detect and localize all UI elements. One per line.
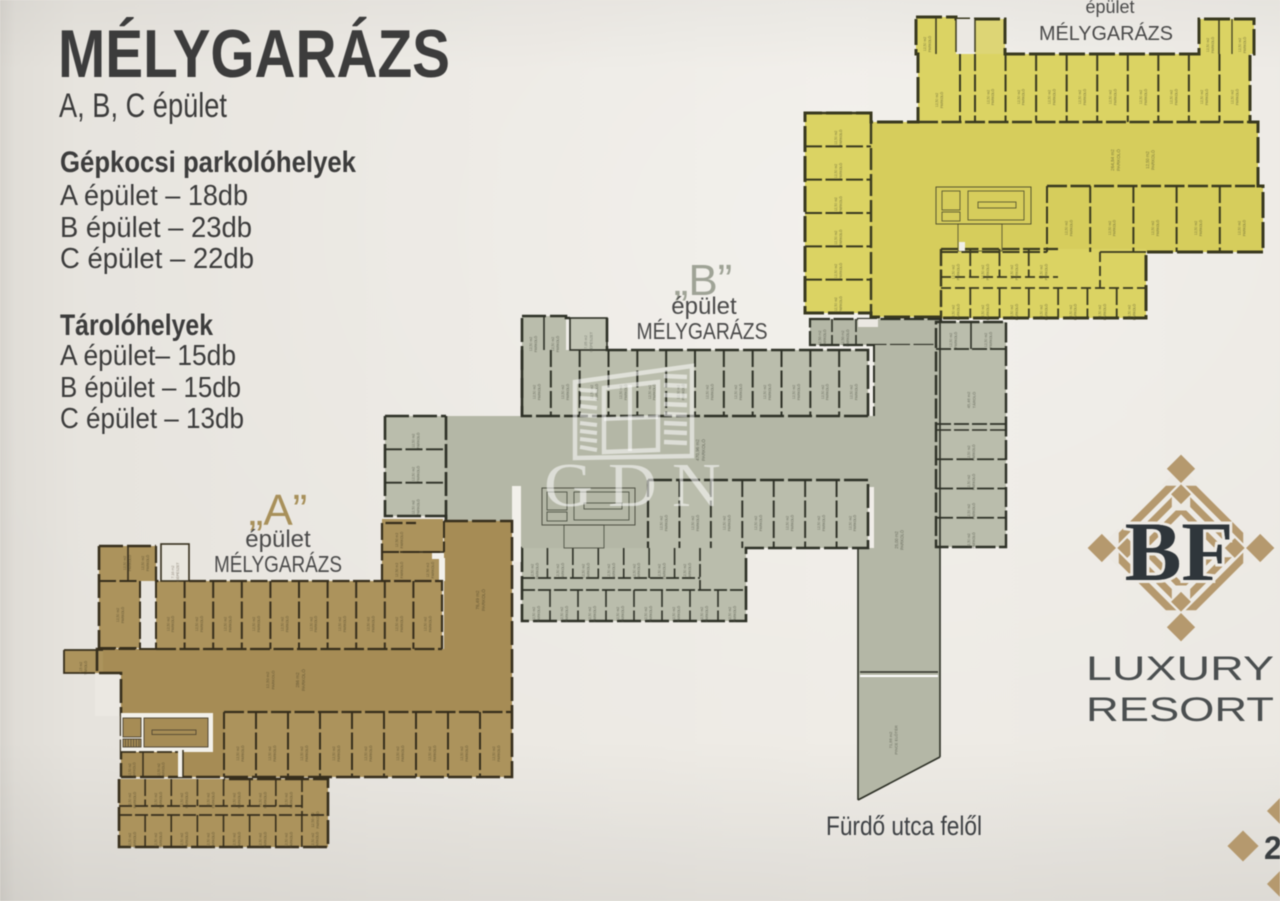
svg-text:12,50 m2: 12,50 m2 xyxy=(1039,265,1043,279)
svg-text:12,50 m2: 12,50 m2 xyxy=(700,607,704,621)
svg-text:PARKOLÓ: PARKOLÓ xyxy=(648,606,653,623)
svg-text:PARKOLÓ: PARKOLÓ xyxy=(1112,89,1117,106)
svg-text:12,50 m2: 12,50 m2 xyxy=(818,331,822,346)
svg-text:12,50 m2: 12,50 m2 xyxy=(658,564,662,578)
svg-text:RESORT: RESORT xyxy=(1086,691,1274,729)
svg-text:PARKOLÓ: PARKOLÓ xyxy=(210,832,215,849)
svg-text:PARKOLÓ: PARKOLÓ xyxy=(415,432,420,449)
svg-text:PARKOLÓ: PARKOLÓ xyxy=(313,616,318,633)
svg-text:PARKOLÓ: PARKOLÓ xyxy=(956,264,961,281)
svg-text:12,50 m2: 12,50 m2 xyxy=(632,564,636,578)
svg-text:12,50 m2: 12,50 m2 xyxy=(531,564,535,578)
svg-text:PARKOLÓ: PARKOLÓ xyxy=(971,503,976,520)
svg-text:PARKOLÓ: PARKOLÓ xyxy=(838,263,843,280)
svg-text:PARKOLÓ: PARKOLÓ xyxy=(985,264,990,281)
svg-text:12,50 m2: 12,50 m2 xyxy=(1010,305,1014,319)
svg-text:12,50 m2: 12,50 m2 xyxy=(785,516,789,530)
svg-text:2: 2 xyxy=(1264,830,1280,866)
svg-text:PARKOLÓ: PARKOLÓ xyxy=(956,304,961,321)
svg-text:PARKOLÓ: PARKOLÓ xyxy=(399,531,404,548)
svg-text:12,50 m2: 12,50 m2 xyxy=(128,793,132,807)
svg-text:286 m2: 286 m2 xyxy=(295,672,300,688)
svg-text:12,50 m2: 12,50 m2 xyxy=(1237,221,1241,235)
svg-text:12,50 m2: 12,50 m2 xyxy=(834,231,838,245)
svg-text:PARKOLÓ: PARKOLÓ xyxy=(620,606,625,623)
svg-text:PARKOLÓ: PARKOLÓ xyxy=(132,832,137,849)
svg-text:PARKOLÓ: PARKOLÓ xyxy=(240,745,245,762)
svg-text:PARKOLÓ: PARKOLÓ xyxy=(1204,89,1209,106)
svg-text:Fürdő utca felől: Fürdő utca felől xyxy=(826,811,982,841)
svg-text:12,50 m2: 12,50 m2 xyxy=(232,793,236,807)
svg-text:PARKOLÓ: PARKOLÓ xyxy=(1082,89,1087,106)
svg-text:12,50 m2: 12,50 m2 xyxy=(195,617,199,631)
svg-text:12,50 m2: 12,50 m2 xyxy=(754,516,758,530)
svg-text:12,50 m2: 12,50 m2 xyxy=(967,504,971,518)
svg-text:12,50 m2: 12,50 m2 xyxy=(367,617,371,631)
svg-text:PARKOLÓ: PARKOLÓ xyxy=(1043,264,1048,281)
svg-text:PARKOLÓ: PARKOLÓ xyxy=(480,589,486,611)
svg-text:PARKOLÓ: PARKOLÓ xyxy=(199,616,204,633)
svg-text:PARKOLÓ: PARKOLÓ xyxy=(825,384,830,401)
svg-text:12,50 m2: 12,50 m2 xyxy=(616,607,620,621)
svg-text:12,50 m2: 12,50 m2 xyxy=(1010,265,1014,279)
svg-text:PARKOLÓ: PARKOLÓ xyxy=(1069,220,1074,237)
svg-text:PARKOLÓ: PARKOLÓ xyxy=(767,384,772,401)
svg-text:12,50 m2: 12,50 m2 xyxy=(232,833,236,847)
svg-text:12,50 m2: 12,50 m2 xyxy=(792,385,796,399)
svg-text:B épület – 15db: B épület – 15db xyxy=(60,372,241,404)
svg-text:12,50 m2: 12,50 m2 xyxy=(952,305,956,319)
svg-text:PARKOLÓ: PARKOLÓ xyxy=(687,563,692,580)
svg-text:PARKOLÓ: PARKOLÓ xyxy=(415,499,420,516)
svg-text:12,50 m2: 12,50 m2 xyxy=(311,813,315,828)
svg-text:PARKOLÓ: PARKOLÓ xyxy=(852,515,857,532)
svg-text:12,50 m2: 12,50 m2 xyxy=(1231,90,1235,104)
svg-text:12,50 m2: 12,50 m2 xyxy=(588,607,592,621)
svg-text:PARKOLÓ: PARKOLÓ xyxy=(738,384,743,401)
svg-text:PARKOLÓ: PARKOLÓ xyxy=(432,745,437,762)
svg-text:12,50 m2: 12,50 m2 xyxy=(180,793,184,807)
svg-text:LUXURY: LUXURY xyxy=(1086,650,1274,688)
svg-text:12,50 m2: 12,50 m2 xyxy=(492,746,496,760)
svg-text:PINCE ELŐTÉR: PINCE ELŐTÉR xyxy=(894,725,899,754)
svg-text:12,50 m2: 12,50 m2 xyxy=(252,617,256,631)
svg-text:12,50 m2: 12,50 m2 xyxy=(560,607,564,621)
svg-text:12,50 m2: 12,50 m2 xyxy=(460,746,464,760)
svg-text:7,05 m2: 7,05 m2 xyxy=(584,335,588,349)
svg-text:12,50 m2: 12,50 m2 xyxy=(311,833,315,847)
svg-text:12,50 m2: 12,50 m2 xyxy=(338,617,342,631)
svg-text:12,50 m2: 12,50 m2 xyxy=(984,333,988,347)
svg-text:12,50 m2: 12,50 m2 xyxy=(157,763,161,777)
svg-text:PARKOLÓ: PARKOLÓ xyxy=(560,563,565,580)
svg-text:PARKOLÓ: PARKOLÓ xyxy=(1241,220,1246,237)
svg-text:PARKOLÓ: PARKOLÓ xyxy=(990,89,995,106)
svg-text:PARKOLÓ: PARKOLÓ xyxy=(1210,37,1215,54)
svg-text:12,50 m2: 12,50 m2 xyxy=(141,556,145,570)
svg-text:PARKOLÓ: PARKOLÓ xyxy=(927,36,932,53)
svg-text:PARKOLÓ: PARKOLÓ xyxy=(1174,89,1179,106)
svg-text:12,50 m2: 12,50 m2 xyxy=(236,746,240,760)
svg-text:12,50 m2: 12,50 m2 xyxy=(935,93,939,107)
svg-text:12,50 m2: 12,50 m2 xyxy=(582,564,586,578)
svg-text:PARKOLÓ: PARKOLÓ xyxy=(565,384,570,401)
svg-text:PARKOLÓ: PARKOLÓ xyxy=(1151,149,1156,170)
svg-text:12,50 m2: 12,50 m2 xyxy=(396,746,400,760)
svg-text:12,50 m2: 12,50 m2 xyxy=(395,617,399,631)
svg-text:PARKOLÓ: PARKOLÓ xyxy=(536,384,541,401)
svg-text:PARKOLÓ: PARKOLÓ xyxy=(709,384,714,401)
svg-text:MÉLYGARÁZS: MÉLYGARÁZS xyxy=(637,318,768,344)
svg-text:MÉLYGARÁZS: MÉLYGARÁZS xyxy=(1039,22,1173,45)
svg-text:PARKOLÓ: PARKOLÓ xyxy=(676,606,681,623)
svg-text:PARKOLÓ: PARKOLÓ xyxy=(536,606,541,623)
svg-text:PARKOLÓ: PARKOLÓ xyxy=(158,792,163,809)
svg-text:PARKOLÓ: PARKOLÓ xyxy=(285,616,290,633)
svg-text:PARKOLÓ: PARKOLÓ xyxy=(271,670,276,689)
svg-text:12,50 m2: 12,50 m2 xyxy=(412,467,416,481)
svg-text:12,50 m2: 12,50 m2 xyxy=(180,833,184,847)
svg-text:12,50 m2: 12,50 m2 xyxy=(981,265,985,279)
svg-text:12,50 m2: 12,50 m2 xyxy=(705,385,709,399)
svg-text:TÁROLÓ: TÁROLÓ xyxy=(83,661,88,675)
svg-text:12,50 m2: 12,50 m2 xyxy=(1200,90,1204,104)
svg-text:A, B, C épület: A, B, C épület xyxy=(59,87,227,125)
svg-text:PARKOLÓ: PARKOLÓ xyxy=(1051,89,1056,106)
svg-text:PARKOLÓ: PARKOLÓ xyxy=(184,792,189,809)
svg-text:264,84 m2: 264,84 m2 xyxy=(1110,149,1115,171)
svg-text:12,50 m2: 12,50 m2 xyxy=(607,564,611,578)
svg-text:12,50 m2: 12,50 m2 xyxy=(412,500,416,514)
svg-text:Tárolóhelyek: Tárolóhelyek xyxy=(60,309,213,342)
svg-text:12,50 m2: 12,50 m2 xyxy=(821,385,825,399)
svg-text:PARKOLÓ: PARKOLÓ xyxy=(289,832,294,849)
svg-text:12,50 m2: 12,50 m2 xyxy=(644,607,648,621)
svg-text:PARKOLÓ: PARKOLÓ xyxy=(1198,220,1203,237)
svg-text:PARKOLÓ: PARKOLÓ xyxy=(838,229,843,246)
svg-text:12,50 m2: 12,50 m2 xyxy=(268,746,272,760)
svg-text:12,50 m2: 12,50 m2 xyxy=(128,833,132,847)
svg-text:12,50 m2: 12,50 m2 xyxy=(285,793,289,807)
svg-text:MÉLYGARÁZS: MÉLYGARÁZS xyxy=(214,551,342,577)
svg-text:PARKOLÓ: PARKOLÓ xyxy=(300,669,306,691)
svg-text:12,50 m2: 12,50 m2 xyxy=(648,385,652,399)
svg-text:PARKOLÓ: PARKOLÓ xyxy=(399,561,404,578)
svg-text:PARKOLÓ: PARKOLÓ xyxy=(496,745,501,762)
svg-text:GDN: GDN xyxy=(544,452,736,520)
svg-text:12,50 m2: 12,50 m2 xyxy=(259,833,263,847)
svg-text:12,50 m2: 12,50 m2 xyxy=(154,833,158,847)
svg-text:PARKOLÓ: PARKOLÓ xyxy=(184,832,189,849)
svg-text:PARKOLÓ: PARKOLÓ xyxy=(400,745,405,762)
svg-text:12,50 m2: 12,50 m2 xyxy=(556,564,560,578)
svg-text:épület: épület xyxy=(671,293,737,320)
svg-text:PARKOLÓ: PARKOLÓ xyxy=(1235,89,1240,106)
svg-text:PARKOLÓ: PARKOLÓ xyxy=(985,304,990,321)
svg-text:PARKOLÓ: PARKOLÓ xyxy=(158,832,163,849)
svg-text:12,50 m2: 12,50 m2 xyxy=(532,607,536,621)
svg-text:71,66 m2: 71,66 m2 xyxy=(888,731,893,748)
svg-text:PARKOLÓ: PARKOLÓ xyxy=(210,792,215,809)
svg-text:PARKOLÓ: PARKOLÓ xyxy=(236,832,241,849)
svg-text:PARKOLÓ: PARKOLÓ xyxy=(838,296,843,313)
svg-text:12,50 m2: 12,50 m2 xyxy=(763,385,767,399)
svg-text:PARKOLÓ: PARKOLÓ xyxy=(822,329,827,346)
svg-text:PARKOLÓ: PARKOLÓ xyxy=(256,616,261,633)
svg-text:PARKOLÓ: PARKOLÓ xyxy=(971,532,976,549)
svg-text:12,50 m2: 12,50 m2 xyxy=(1069,305,1073,319)
svg-text:12,50 m2: 12,50 m2 xyxy=(834,131,838,145)
svg-text:12,50 m2: 12,50 m2 xyxy=(532,385,536,399)
svg-text:12,50 m2: 12,50 m2 xyxy=(834,197,838,211)
svg-text:PARKOLÓ: PARKOLÓ xyxy=(535,563,540,580)
svg-text:12,50 m2: 12,50 m2 xyxy=(1098,305,1102,319)
svg-text:PARKOLÓ: PARKOLÓ xyxy=(1014,264,1019,281)
svg-text:12,50 m2: 12,50 m2 xyxy=(412,434,416,448)
svg-text:PARKOLÓ: PARKOLÓ xyxy=(971,473,976,490)
svg-text:PARKOLÓ: PARKOLÓ xyxy=(1131,304,1136,321)
svg-text:PARKOLÓ: PARKOLÓ xyxy=(1043,304,1048,321)
svg-text:PARKOLÓ: PARKOLÓ xyxy=(145,555,150,572)
svg-text:12,50 m2: 12,50 m2 xyxy=(1065,221,1069,235)
svg-text:12,50 m2: 12,50 m2 xyxy=(1139,90,1143,104)
svg-text:PARKOLÓ: PARKOLÓ xyxy=(845,329,850,346)
svg-text:A épület – 18db: A épület – 18db xyxy=(60,180,248,212)
svg-text:PARKOLÓ: PARKOLÓ xyxy=(368,745,373,762)
svg-text:12,50 m2: 12,50 m2 xyxy=(967,533,971,547)
svg-text:12,50 m2: 12,50 m2 xyxy=(817,516,821,530)
svg-text:épület: épület xyxy=(245,526,311,553)
svg-text:épület: épület xyxy=(1085,0,1134,17)
svg-text:PARKOLÓ: PARKOLÓ xyxy=(585,563,590,580)
svg-text:12,50 m2: 12,50 m2 xyxy=(1108,221,1112,235)
svg-text:4,15 m2: 4,15 m2 xyxy=(79,662,83,674)
svg-text:12,50 m2: 12,50 m2 xyxy=(551,337,555,351)
svg-text:PARKOLÓ: PARKOLÓ xyxy=(1073,304,1078,321)
svg-text:12,50 m2: 12,50 m2 xyxy=(265,671,270,688)
svg-text:12,50 m2: 12,50 m2 xyxy=(1170,90,1174,104)
svg-text:PARKOLÓ: PARKOLÓ xyxy=(704,606,709,623)
svg-text:12,50 m2: 12,50 m2 xyxy=(1194,221,1198,235)
svg-text:12,50 m2: 12,50 m2 xyxy=(154,793,158,807)
svg-text:PARKOLÓ: PARKOLÓ xyxy=(838,129,843,146)
svg-text:12,50 m2: 12,50 m2 xyxy=(1238,38,1242,52)
svg-text:PARKOLÓ: PARKOLÓ xyxy=(1115,149,1121,171)
svg-text:PARKOLÓ: PARKOLÓ xyxy=(132,762,137,778)
svg-text:12,50 m2: 12,50 m2 xyxy=(1047,90,1051,104)
svg-text:12,50 m2: 12,50 m2 xyxy=(1127,305,1131,319)
svg-text:12,50 m2: 12,50 m2 xyxy=(395,563,399,578)
svg-text:A épület– 15db: A épület– 15db xyxy=(60,340,236,372)
svg-text:12,50 m2: 12,50 m2 xyxy=(332,746,336,760)
svg-text:PARKOLÓ: PARKOLÓ xyxy=(1155,220,1160,237)
svg-text:12,50 m2: 12,50 m2 xyxy=(952,265,956,279)
svg-text:12,50 m2: 12,50 m2 xyxy=(300,746,304,760)
svg-text:BF: BF xyxy=(1125,505,1234,599)
svg-text:12,50 m2: 12,50 m2 xyxy=(166,617,170,631)
svg-text:12,50 m2: 12,50 m2 xyxy=(967,475,971,489)
svg-text:PARKOLÓ: PARKOLÓ xyxy=(120,607,125,624)
svg-text:PARKOLÓ: PARKOLÓ xyxy=(1021,89,1026,106)
svg-text:PARKOLÓ: PARKOLÓ xyxy=(227,616,232,633)
svg-text:12,50 m2: 12,50 m2 xyxy=(395,533,399,548)
svg-text:PARKOLÓ: PARKOLÓ xyxy=(370,616,375,633)
svg-text:12,50 m2: 12,50 m2 xyxy=(734,385,738,399)
svg-text:PARKOLÓ: PARKOLÓ xyxy=(564,606,569,623)
svg-text:PARKOLÓ: PARKOLÓ xyxy=(636,563,641,580)
svg-text:12,50 m2: 12,50 m2 xyxy=(841,331,845,346)
svg-text:12,50 m2: 12,50 m2 xyxy=(1078,90,1082,104)
svg-text:PARKOLÓ: PARKOLÓ xyxy=(315,832,320,849)
svg-text:PARKOLÓ: PARKOLÓ xyxy=(796,384,801,401)
svg-text:PARKOLÓ: PARKOLÓ xyxy=(900,529,905,550)
svg-text:12,50 m2: 12,50 m2 xyxy=(426,563,430,578)
svg-text:12,50 m2: 12,50 m2 xyxy=(1206,38,1210,52)
svg-text:PARKOLÓ: PARKOLÓ xyxy=(170,616,175,633)
svg-text:12,50 m2: 12,50 m2 xyxy=(981,305,985,319)
svg-text:PARKOLÓ: PARKOLÓ xyxy=(263,832,268,849)
svg-text:PARKOLÓ: PARKOLÓ xyxy=(838,163,843,180)
svg-text:PARKOLÓ: PARKOLÓ xyxy=(236,792,241,809)
svg-text:PARKOLÓ: PARKOLÓ xyxy=(415,466,420,483)
svg-text:TÁROLÓ: TÁROLÓ xyxy=(972,392,977,408)
svg-text:12,50 m2: 12,50 m2 xyxy=(206,793,210,807)
svg-text:PARKOLÓ: PARKOLÓ xyxy=(821,515,826,532)
svg-text:12,50 m2: 12,50 m2 xyxy=(986,90,990,104)
svg-text:12,50 m2: 12,50 m2 xyxy=(561,385,565,399)
svg-text:PARKOLÓ: PARKOLÓ xyxy=(464,745,469,762)
svg-text:PARKOLÓ: PARKOLÓ xyxy=(1014,304,1019,321)
svg-text:12,50 m2: 12,50 m2 xyxy=(1145,151,1150,169)
svg-text:12,50 m2: 12,50 m2 xyxy=(834,164,838,178)
svg-text:12,50 m2: 12,50 m2 xyxy=(206,833,210,847)
svg-text:PARKOLÓ: PARKOLÓ xyxy=(161,762,166,778)
svg-text:12,50 m2: 12,50 m2 xyxy=(128,763,132,777)
svg-text:12,50 m2: 12,50 m2 xyxy=(285,833,289,847)
svg-text:B épület – 23db: B épület – 23db xyxy=(60,212,252,244)
svg-text:C épület – 13db: C épület – 13db xyxy=(60,403,244,435)
svg-text:12,50 m2: 12,50 m2 xyxy=(259,793,263,807)
svg-text:12,50 m2: 12,50 m2 xyxy=(923,37,927,51)
svg-text:25,00 m2: 25,00 m2 xyxy=(894,531,899,549)
svg-text:PARKOLÓ: PARKOLÓ xyxy=(263,792,268,809)
svg-text:12,50 m2: 12,50 m2 xyxy=(1017,90,1021,104)
svg-text:12,50 m2: 12,50 m2 xyxy=(683,564,687,578)
svg-text:PARKOLÓ: PARKOLÓ xyxy=(758,515,763,532)
svg-text:PARKOLÓ: PARKOLÓ xyxy=(399,616,404,633)
svg-text:12,50 m2: 12,50 m2 xyxy=(850,385,854,399)
svg-text:PARKOLÓ: PARKOLÓ xyxy=(428,616,433,633)
svg-text:PARKOLÓ: PARKOLÓ xyxy=(342,616,347,633)
svg-text:45,46 m2: 45,46 m2 xyxy=(966,391,971,408)
svg-text:PARKOLÓ: PARKOLÓ xyxy=(854,384,859,401)
svg-text:76,49 m2: 76,49 m2 xyxy=(475,590,480,610)
svg-text:PARKOLÓ: PARKOLÓ xyxy=(988,332,993,349)
svg-text:12,50 m2: 12,50 m2 xyxy=(123,556,127,570)
svg-text:12,50 m2: 12,50 m2 xyxy=(848,516,852,530)
svg-text:12,50 m2: 12,50 m2 xyxy=(834,297,838,311)
svg-text:PARKOLÓ: PARKOLÓ xyxy=(971,444,976,461)
svg-text:PARKOLÓ: PARKOLÓ xyxy=(132,792,137,809)
svg-text:12,50 m2: 12,50 m2 xyxy=(424,617,428,631)
svg-text:12,50 m2: 12,50 m2 xyxy=(428,746,432,760)
svg-text:PARKOLÓ: PARKOLÓ xyxy=(272,745,277,762)
svg-text:12,50 m2: 12,50 m2 xyxy=(1040,305,1044,319)
svg-text:PARKOLÓ: PARKOLÓ xyxy=(662,563,667,580)
svg-text:12,50 m2: 12,50 m2 xyxy=(224,617,228,631)
svg-text:C épület – 22db: C épület – 22db xyxy=(60,243,254,275)
svg-text:12,50 m2: 12,50 m2 xyxy=(672,607,676,621)
svg-text:PARKOLÓ: PARKOLÓ xyxy=(336,745,341,762)
svg-text:GÉPÉSZET: GÉPÉSZET xyxy=(588,331,593,352)
svg-text:12,50 m2: 12,50 m2 xyxy=(949,333,953,347)
svg-text:12,50 m2: 12,50 m2 xyxy=(1151,221,1155,235)
svg-text:12,50 m2: 12,50 m2 xyxy=(728,607,732,621)
svg-text:PARKOLÓ: PARKOLÓ xyxy=(289,792,294,809)
svg-text:PARKOLÓ: PARKOLÓ xyxy=(1143,89,1148,106)
svg-text:PARKOLÓ: PARKOLÓ xyxy=(315,811,320,828)
svg-text:PARKOLÓ: PARKOLÓ xyxy=(430,561,435,578)
svg-text:PARKOLÓ: PARKOLÓ xyxy=(838,196,843,213)
svg-text:12,50 m2: 12,50 m2 xyxy=(309,617,313,631)
svg-text:MÉLYGARÁZS: MÉLYGARÁZS xyxy=(58,16,450,92)
svg-text:PARKOLÓ: PARKOLÓ xyxy=(555,336,560,353)
svg-text:7,16 m2: 7,16 m2 xyxy=(171,566,175,579)
svg-text:GÉPÉSZET: GÉPÉSZET xyxy=(175,562,180,582)
svg-text:PARKOLÓ: PARKOLÓ xyxy=(1242,37,1247,54)
svg-text:PARKOLÓ: PARKOLÓ xyxy=(789,515,794,532)
svg-text:12,50 m2: 12,50 m2 xyxy=(116,608,120,622)
svg-text:PARKOLÓ: PARKOLÓ xyxy=(611,563,616,580)
svg-text:PARKOLÓ: PARKOLÓ xyxy=(953,332,958,349)
svg-text:12,50 m2: 12,50 m2 xyxy=(281,617,285,631)
svg-text:12,50 m2: 12,50 m2 xyxy=(834,264,838,278)
svg-text:PARKOLÓ: PARKOLÓ xyxy=(732,606,737,623)
svg-text:PARKOLÓ: PARKOLÓ xyxy=(1112,220,1117,237)
svg-text:PARKOLÓ: PARKOLÓ xyxy=(939,92,944,109)
svg-text:12,50 m2: 12,50 m2 xyxy=(529,337,533,351)
svg-text:Gépkocsi parkolóhelyek: Gépkocsi parkolóhelyek xyxy=(60,146,356,179)
svg-text:12,50 m2: 12,50 m2 xyxy=(967,445,971,459)
svg-text:PARKOLÓ: PARKOLÓ xyxy=(533,336,538,353)
svg-text:PARKOLÓ: PARKOLÓ xyxy=(592,606,597,623)
svg-text:PARKOLÓ: PARKOLÓ xyxy=(304,745,309,762)
svg-text:PARKOLÓ: PARKOLÓ xyxy=(1102,304,1107,321)
svg-text:12,50 m2: 12,50 m2 xyxy=(364,746,368,760)
svg-text:12,50 m2: 12,50 m2 xyxy=(1109,90,1113,104)
